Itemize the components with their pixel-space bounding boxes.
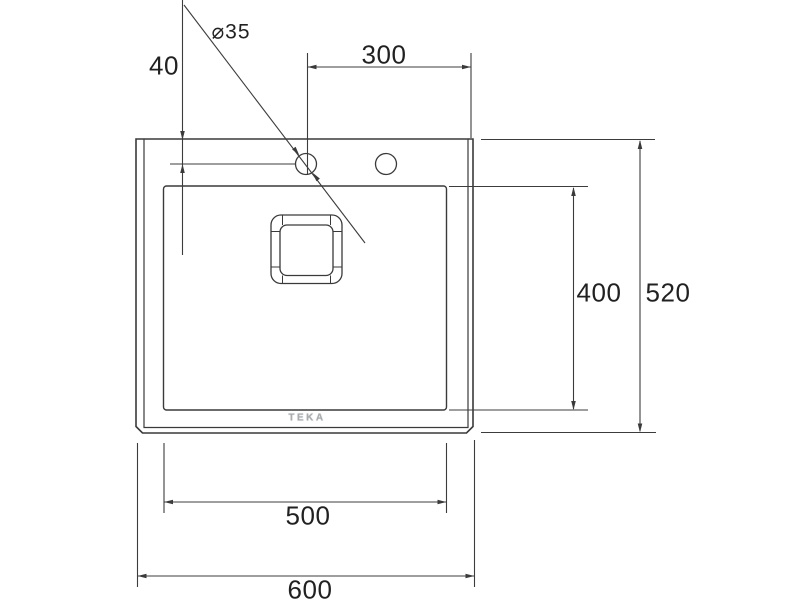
sink-technical-drawing: 40 ⌀35 300 400 520 500 600 TEKA xyxy=(0,0,800,600)
dim-label-bowl-width: 500 xyxy=(286,501,331,532)
drain-square xyxy=(271,215,342,284)
dim-label-hole-diameter: ⌀35 xyxy=(211,20,250,45)
dim-label-overall-width: 600 xyxy=(288,575,333,600)
dim-line-520 xyxy=(481,140,656,433)
dim-line-400 xyxy=(449,187,588,411)
dim-label-hole-offset: 40 xyxy=(149,51,179,82)
dim-label-overall-length: 520 xyxy=(646,278,691,309)
dim-label-hole-to-right-edge: 300 xyxy=(362,40,407,71)
dim-line-300 xyxy=(308,53,472,175)
dimension-arrowheads xyxy=(138,65,643,579)
faucet-hole-right xyxy=(376,154,397,175)
dim-label-bowl-length: 400 xyxy=(577,278,622,309)
sink-bowl-outline xyxy=(164,186,447,410)
sink-outer-rim xyxy=(136,139,473,433)
brand-logo: TEKA xyxy=(288,413,325,424)
